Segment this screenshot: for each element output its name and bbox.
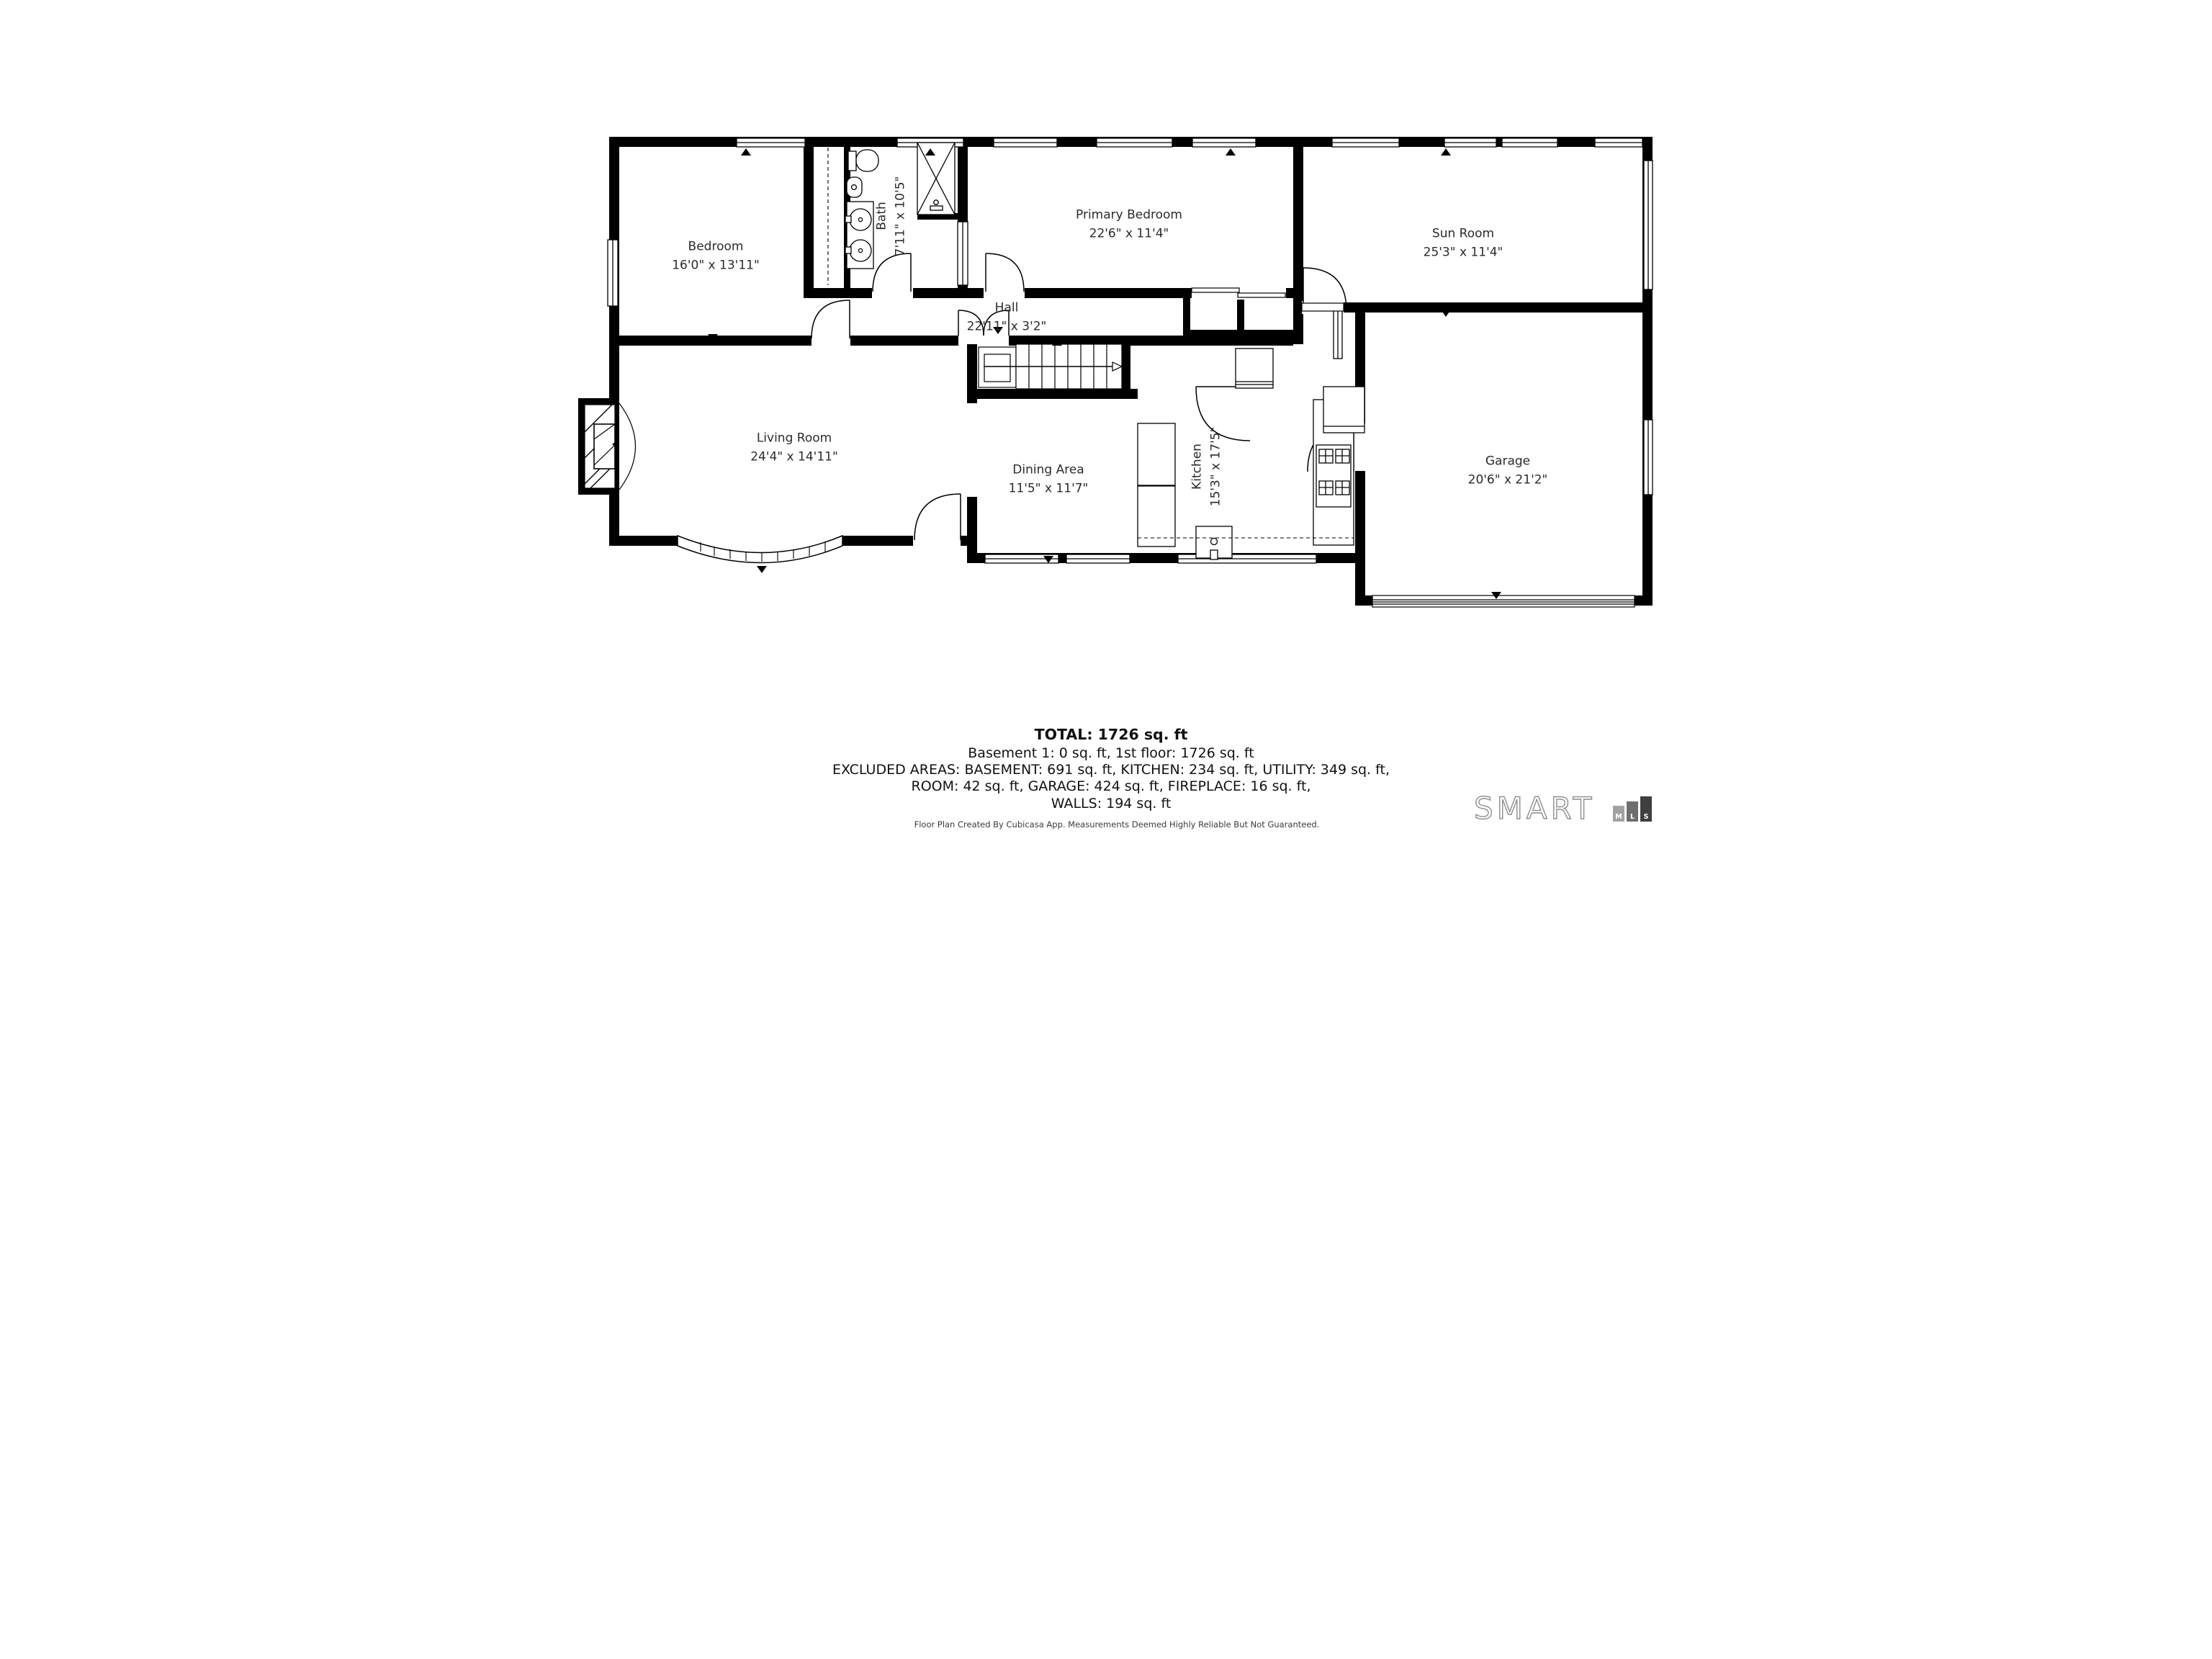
summary-line-excluded-2: ROOM: 42 sq. ft, GARAGE: 424 sq. ft, FIR… [832,778,1390,795]
room-name: Hall [967,299,1047,318]
room-label-dining-area: Dining Area 11'5" x 11'7" [1009,461,1089,499]
room-dims: 22'11" x 3'2" [967,318,1047,336]
stove [1316,445,1351,507]
room-dims: 16'0" x 13'11" [672,256,760,275]
mls-bar-l: L [1627,801,1638,822]
kitchen-cabinet [1236,349,1273,388]
room-dims: 11'5" x 11'7" [1009,480,1089,498]
room-dims: 24'4" x 14'11" [750,448,838,467]
area-summary: TOTAL: 1726 sq. ft Basement 1: 0 sq. ft,… [832,726,1390,812]
room-label-hall: Hall 22'11" x 3'2" [967,299,1047,337]
staircase [979,344,1122,389]
room-name: Bedroom [672,238,760,256]
bath-door [873,253,911,292]
kitchen-sink [1196,526,1232,559]
disclaimer-text: Floor Plan Created By Cubicasa App. Meas… [914,819,1320,829]
sun-room-door-threshold [1302,303,1344,311]
total-area: TOTAL: 1726 sq. ft [832,726,1390,744]
primary-bedroom-door [986,253,1024,292]
vanity-double-sink [845,202,873,269]
mls-bar-s: S [1640,796,1652,822]
room-label-garage: Garage 20'6" x 21'2" [1468,452,1548,490]
mls-letter: L [1630,813,1635,821]
room-label-living-room: Living Room 24'4" x 14'11" [750,429,838,467]
kitchen-counter-lower [1138,486,1175,547]
pedestal-sink [847,177,862,197]
smartmls-logo: SMART M L S [1473,789,1652,825]
mls-bar-m: M [1613,806,1624,822]
room-name: Garage [1468,452,1548,471]
room-dims: 25'3" x 11'4" [1424,243,1503,262]
fireplace [578,398,636,495]
room-name: Dining Area [1009,461,1089,480]
summary-line-floors: Basement 1: 0 sq. ft, 1st floor: 1726 sq… [832,745,1390,762]
utility-cabinet [1323,387,1364,433]
room-name: Bath [873,176,891,256]
mls-bars: M L S [1613,796,1652,825]
room-dims: 22'6" x 11'4" [1076,225,1182,243]
mls-letter: S [1644,813,1649,821]
toilet [848,150,878,171]
mls-letter: M [1615,813,1622,821]
floor-plan-page: Bedroom 16'0" x 13'11" Bath 7'11" x 10'5… [553,0,1659,829]
room-name: Living Room [750,429,838,448]
shower [917,143,955,215]
room-dims: 7'11" x 10'5" [891,176,910,256]
kitchen-counter-upper [1138,423,1175,485]
room-dims: 15'3" x 17'5" [1207,427,1226,507]
room-dims: 20'6" x 21'2" [1468,471,1548,490]
room-label-kitchen: Kitchen 15'3" x 17'5" [1188,427,1226,507]
room-label-bedroom: Bedroom 16'0" x 13'11" [672,238,760,276]
room-name: Kitchen [1188,427,1207,507]
room-label-sun-room: Sun Room 25'3" x 11'4" [1424,225,1503,263]
living-room-exterior-door [914,494,961,540]
floor-plan-drawing [553,0,1659,829]
room-name: Primary Bedroom [1076,206,1182,225]
room-name: Sun Room [1424,225,1503,243]
smart-logo-wordmark: SMART [1473,789,1609,825]
room-label-primary-bedroom: Primary Bedroom 22'6" x 11'4" [1076,206,1182,244]
kitchen-fixtures [1138,349,1364,559]
summary-line-walls: WALLS: 194 sq. ft [832,796,1390,812]
bedroom-door [811,300,850,338]
summary-line-excluded-1: EXCLUDED AREAS: BASEMENT: 691 sq. ft, KI… [832,762,1390,778]
smart-logo-text: SMART [1474,791,1595,825]
room-label-bath: Bath 7'11" x 10'5" [873,176,911,256]
